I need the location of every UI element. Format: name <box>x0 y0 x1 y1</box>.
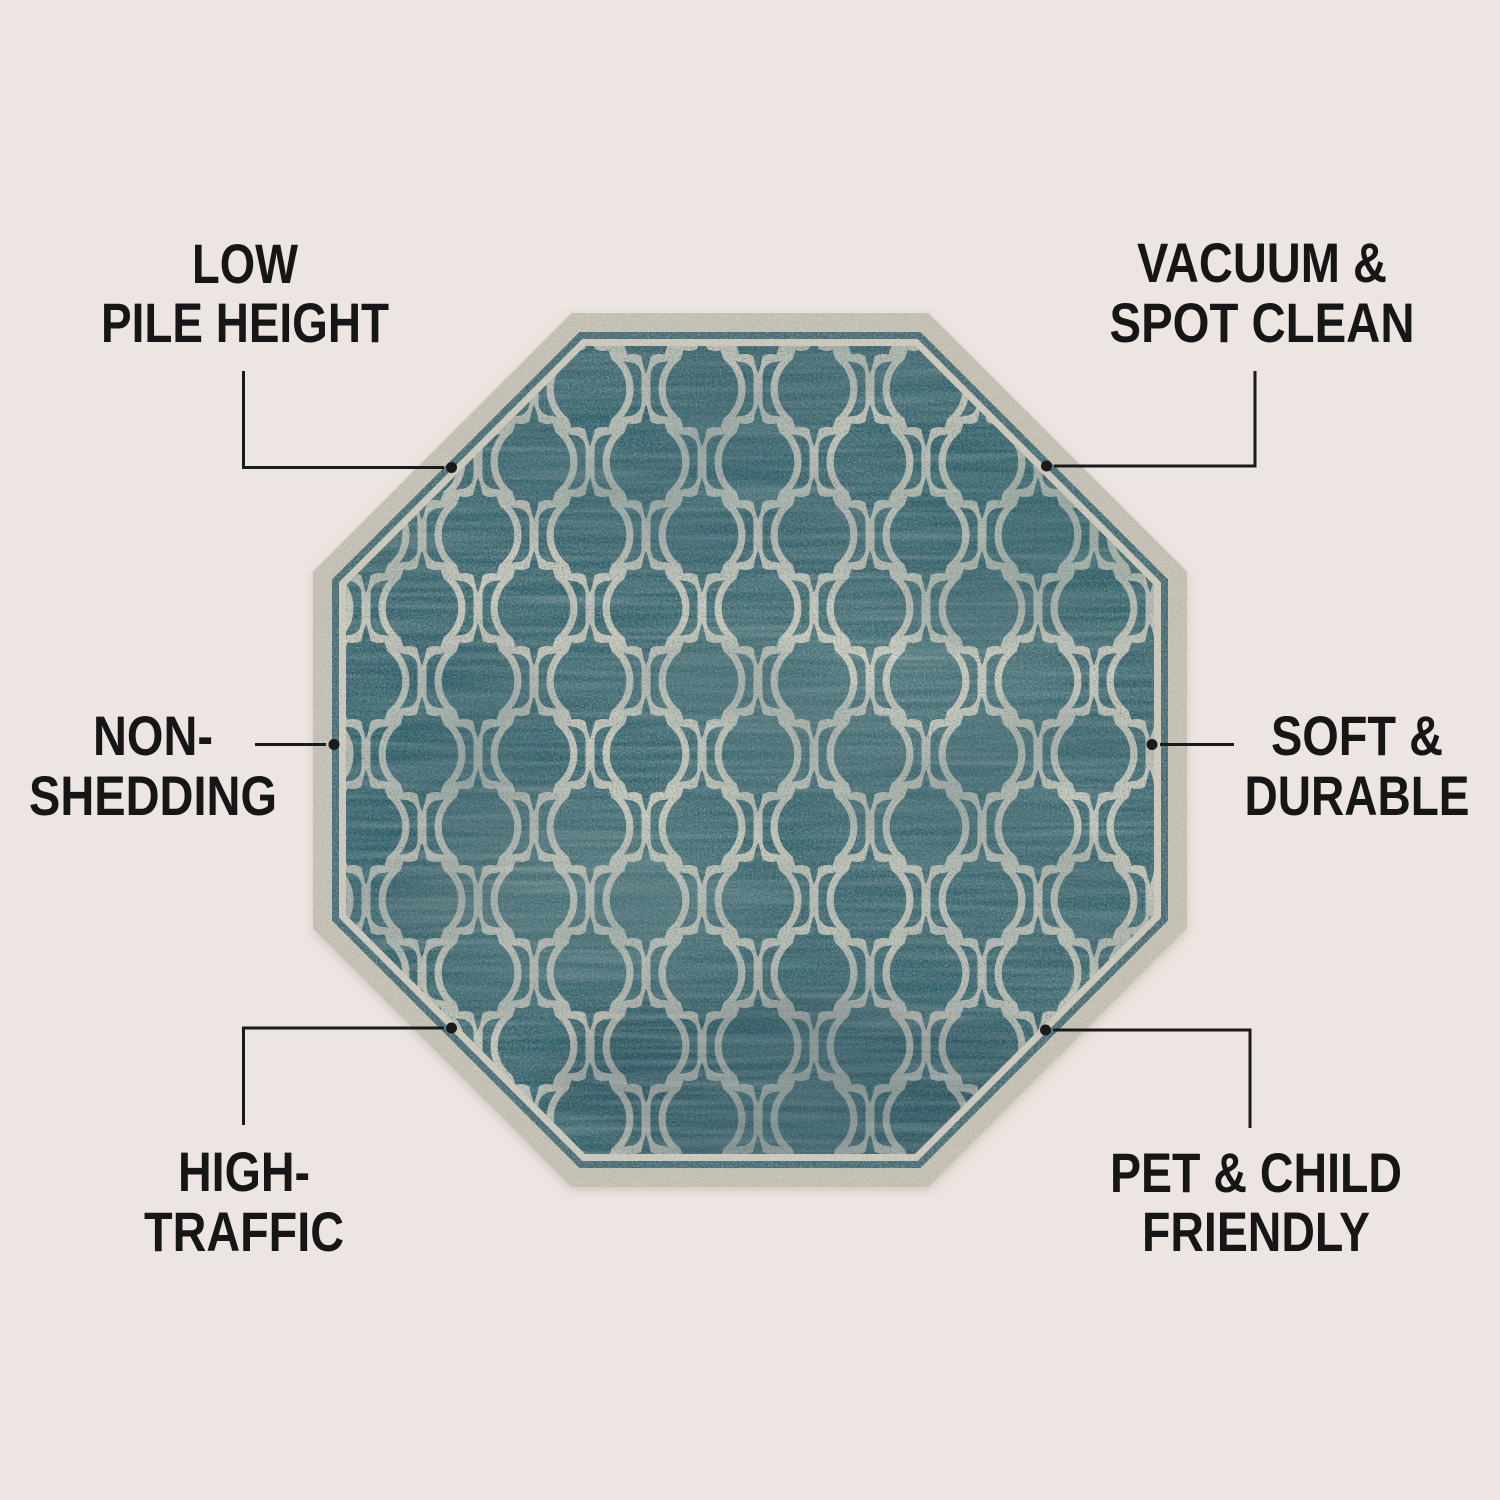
svg-text:HIGH-: HIGH- <box>178 1140 310 1203</box>
svg-text:LOW: LOW <box>192 232 298 295</box>
svg-text:VACUUM &: VACUUM & <box>1137 231 1387 294</box>
svg-text:DURABLE: DURABLE <box>1245 764 1470 827</box>
svg-text:SOFT &: SOFT & <box>1271 704 1443 767</box>
svg-text:SPOT CLEAN: SPOT CLEAN <box>1110 291 1415 354</box>
svg-text:SHEDDING: SHEDDING <box>29 764 277 827</box>
svg-text:PILE HEIGHT: PILE HEIGHT <box>101 291 389 354</box>
svg-text:TRAFFIC: TRAFFIC <box>144 1200 344 1263</box>
svg-text:NON-: NON- <box>93 704 213 767</box>
svg-text:PET & CHILD: PET & CHILD <box>1110 1141 1402 1204</box>
svg-text:FRIENDLY: FRIENDLY <box>1142 1200 1370 1263</box>
